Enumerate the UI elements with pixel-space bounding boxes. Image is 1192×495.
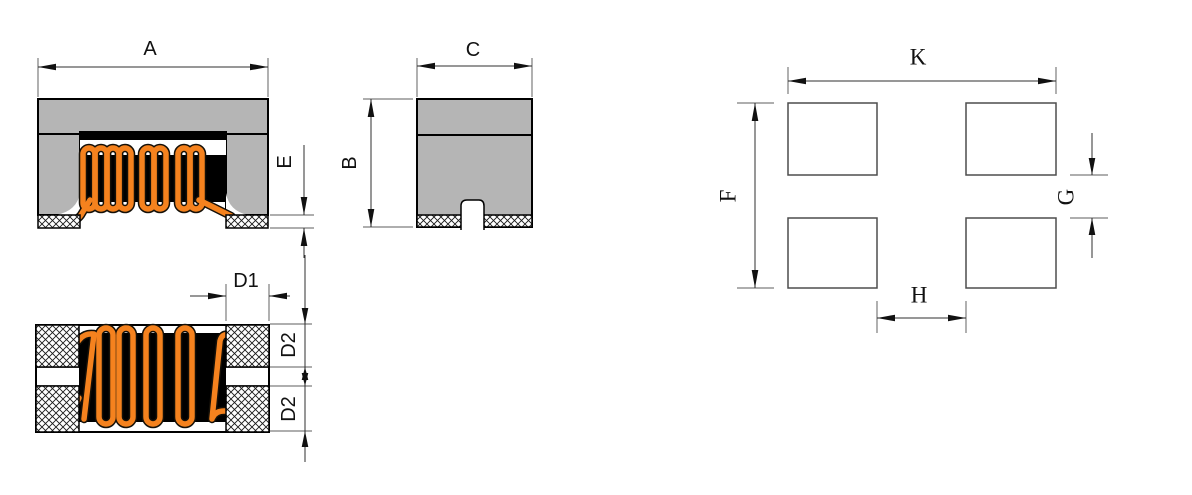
dim-g-arrow-down [1089,158,1096,175]
dim-e-arrow-up [301,228,308,246]
dim-label-k: K [910,45,927,70]
land-pattern-view: K F G H [716,45,1109,334]
dim-c-arrow-left [417,63,435,70]
dim-label-d2-lower: D2 [278,396,300,422]
dim-h-arrow-right [948,315,966,322]
dim-k: K [788,45,1056,95]
dim-g: G [1054,133,1109,258]
dim-c: C [417,39,532,97]
dim-d2-arrow-down-top [302,308,309,324]
dim-c-arrow-right [514,63,532,70]
bottom-pad-bottom-left [36,386,79,432]
dim-e-tick-lines [270,215,314,228]
dim-label-e: E [274,155,296,168]
dim-f-arrow-down [752,270,759,288]
front-core-top-bar [79,131,227,140]
inductor-dimension-drawing: A E C [0,0,1192,495]
dim-d1-arrow-right [208,293,226,300]
dim-k-arrow-left [788,78,806,85]
dim-d1-arrow-left [269,293,287,300]
dim-d1: D1 [190,270,290,321]
dim-b-arrow-down [368,209,375,227]
dim-h-arrow-left [877,315,895,322]
land-pad-top-right [966,103,1056,175]
bottom-pad-bottom-right [226,386,269,432]
side-notch-fill [461,200,484,230]
dim-e-arrow-down [301,197,308,215]
land-pad-bottom-right [966,218,1056,288]
dim-e: E [270,145,314,258]
front-right-terminal [226,215,268,228]
dim-f-arrow-up [752,103,759,121]
dim-d2: D2 D2 [270,255,312,462]
front-right-leg [226,134,268,215]
dim-label-d2-upper: D2 [278,332,300,358]
bottom-pad-top-left [36,325,79,367]
dim-d2-arrow-up-bottom [302,431,309,447]
dim-k-arrow-right [1038,78,1056,85]
dim-a-extension-lines [38,58,268,97]
front-left-leg [38,134,80,215]
dim-label-g: G [1054,189,1079,206]
front-top-plate [38,99,268,135]
dim-a: A [38,38,268,97]
dim-label-b: B [339,156,361,169]
dim-label-a: A [143,38,157,60]
land-pad-top-left [788,103,877,175]
dim-b-arrow-up [368,99,375,117]
land-pad-bottom-left [788,218,877,288]
front-view: A E [38,38,314,258]
bottom-view: D1 D2 D2 [36,255,312,462]
side-view: C B [339,39,532,230]
dim-f: F [716,103,775,288]
dim-g-arrow-up [1089,218,1096,235]
dimension-drawing-canvas: A E C [0,0,1192,495]
dim-b: B [339,99,413,227]
dim-label-f: F [716,190,741,203]
dim-label-h: H [911,283,928,308]
front-left-terminal [38,215,80,228]
dim-h: H [877,283,966,334]
dim-label-c: C [466,39,480,61]
dim-label-d1: D1 [233,270,259,292]
bottom-pad-top-right [226,325,269,367]
dim-a-arrow-left [38,64,56,71]
dim-a-arrow-right [250,64,268,71]
